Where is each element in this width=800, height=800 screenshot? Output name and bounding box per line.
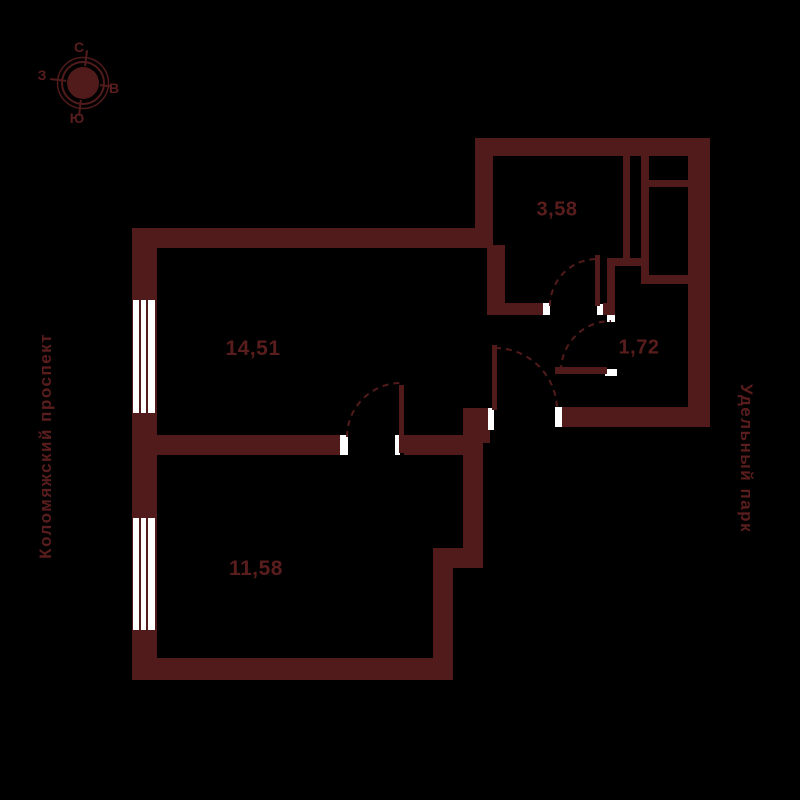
door-swing-arc-wc [561, 321, 611, 371]
wall-hall-bottom [562, 407, 710, 427]
door-jamb [340, 435, 348, 455]
wc-left-partition [607, 266, 615, 315]
window-glazing-line [146, 518, 148, 630]
wall-bathroom-left-lower [487, 245, 505, 310]
door-swing-arc-bathroom [550, 259, 597, 306]
window-glazing-line [146, 300, 148, 413]
wc-corner-partition [607, 258, 643, 266]
shaft-partition-1 [623, 156, 630, 259]
room-area-label-living-room: 14,51 [225, 337, 280, 361]
wall-hall-corner-block [463, 408, 490, 443]
door-jamb [543, 303, 550, 315]
street-label-right: Удельный парк [736, 384, 756, 533]
window-bedroom [133, 518, 155, 630]
street-label-left: Коломяжский проспект [36, 333, 56, 559]
compass-letter-north: С [74, 39, 84, 55]
wall-top-east [475, 138, 710, 156]
compass-letter-west: З [38, 67, 47, 83]
door-jamb [555, 407, 562, 427]
shaft-niche-shelf [649, 180, 688, 187]
door-leaf-bedroom [399, 385, 404, 453]
wc-top-partition [641, 275, 688, 284]
door-swing-arc-entrance [495, 348, 557, 410]
wall-top-west [132, 228, 493, 248]
compass-rose: С В Ю З [38, 39, 119, 126]
window-glazing-line [139, 300, 141, 413]
compass-letter-east: В [109, 80, 119, 96]
wall-room-divider-right [404, 435, 463, 455]
door-swing-arc-bedroom [347, 383, 401, 437]
partitions-group [607, 156, 688, 315]
room-area-label-bathroom: 3,58 [537, 199, 578, 222]
wall-right-lower [433, 568, 453, 680]
room-area-label-bedroom: 11,58 [229, 557, 283, 581]
window-living-room [133, 300, 155, 413]
door-leaf-wc [555, 367, 607, 374]
compass-inner-disk [67, 67, 99, 99]
wall-bathroom-bottom [487, 303, 543, 315]
door-leaf-bathroom [595, 255, 600, 306]
wall-right-mid [463, 427, 483, 552]
compass-letter-south: Ю [70, 110, 84, 126]
door-leaf-entrance [492, 345, 497, 410]
wall-right-exterior [688, 138, 710, 427]
floor-plan-drawing: С В Ю З [0, 0, 800, 800]
wall-bottom-exterior [132, 658, 453, 680]
room-area-label-wc: 1,72 [619, 337, 660, 360]
door-jamb [488, 408, 494, 430]
compass-tick-west [50, 79, 66, 81]
wall-bathroom-left-upper [475, 138, 493, 245]
wall-room-divider-left [157, 435, 340, 455]
compass-tick-north [85, 50, 87, 66]
floor-plan-canvas: С В Ю З 14,51 11,58 3,58 1,72 Коломяжски… [0, 0, 800, 800]
window-glazing-line [139, 518, 141, 630]
